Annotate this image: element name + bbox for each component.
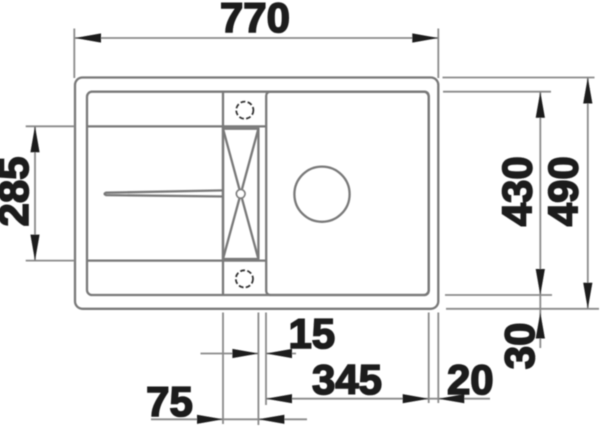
svg-text:285: 285 (0, 156, 37, 226)
svg-text:75: 75 (146, 378, 193, 425)
svg-text:30: 30 (496, 323, 543, 370)
svg-text:770: 770 (220, 0, 290, 41)
svg-text:490: 490 (540, 156, 587, 226)
svg-text:430: 430 (494, 156, 541, 226)
svg-text:20: 20 (447, 356, 494, 403)
svg-text:15: 15 (288, 310, 335, 357)
svg-text:345: 345 (312, 356, 382, 403)
